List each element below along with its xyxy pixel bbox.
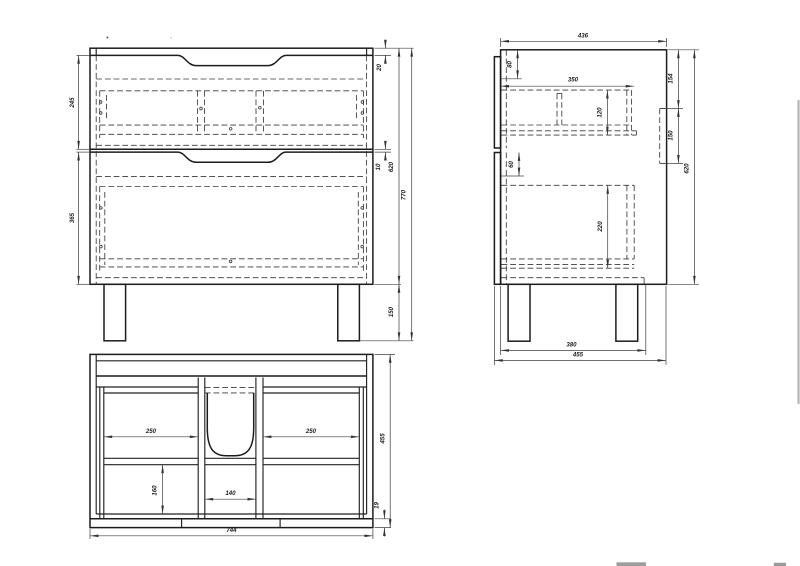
svg-text:436: 436 [577,33,589,40]
svg-text:620: 620 [388,161,395,172]
svg-text:245: 245 [69,97,76,109]
svg-text:455: 455 [379,433,386,445]
svg-text:220: 220 [597,221,604,233]
svg-text:19: 19 [373,502,380,509]
svg-text:80: 80 [506,61,513,68]
svg-text:160: 160 [152,485,159,496]
svg-text:140: 140 [225,490,236,497]
svg-text:120: 120 [597,107,604,118]
svg-text:20: 20 [376,64,383,72]
svg-text:744: 744 [226,527,237,534]
svg-text:620: 620 [684,163,691,174]
svg-text:10: 10 [375,163,382,170]
svg-text:455: 455 [572,352,584,359]
svg-text:380: 380 [566,342,577,349]
svg-text:60: 60 [508,161,515,168]
svg-text:365: 365 [69,212,76,223]
svg-text:154: 154 [668,73,675,84]
svg-text:250: 250 [305,428,317,435]
svg-text:150: 150 [388,306,395,317]
svg-text:150: 150 [668,130,675,141]
svg-text:770: 770 [401,189,408,200]
svg-text:250: 250 [145,428,157,435]
svg-text:350: 350 [568,77,579,84]
